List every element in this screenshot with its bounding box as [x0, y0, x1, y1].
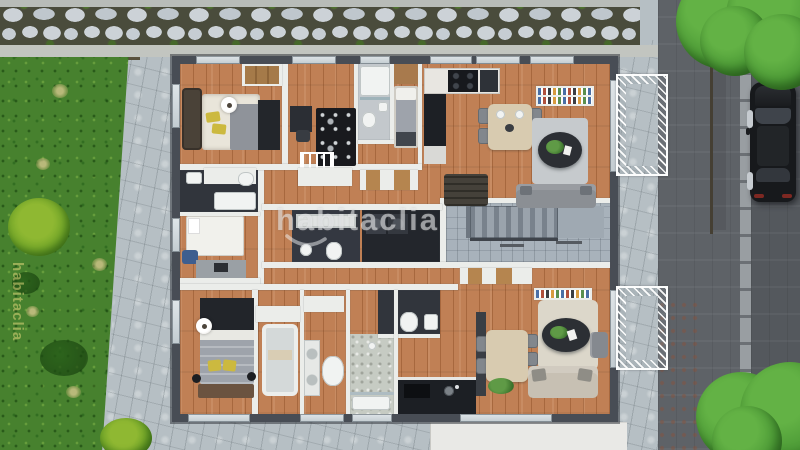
partition-wall [282, 64, 288, 168]
car-wheel [747, 172, 753, 190]
bed-blanket-dark [396, 132, 416, 146]
faucet [455, 385, 459, 389]
partition-wall [378, 334, 440, 338]
washer-column [304, 340, 320, 396]
desk-chair [296, 130, 310, 142]
yellow-pillow [222, 359, 236, 372]
stair-landing [558, 206, 604, 238]
balcony-floor [626, 296, 658, 360]
car-windshield [755, 108, 791, 124]
kitchen-sink-unit [480, 70, 498, 92]
car-roof [757, 126, 789, 166]
wall-shelf [500, 244, 524, 247]
armchair [590, 332, 608, 358]
lime-bush-small [100, 418, 152, 450]
toilet [238, 172, 254, 186]
window [300, 414, 344, 422]
dark-shrub [40, 340, 88, 376]
balcony-bottom [616, 286, 668, 370]
sofa-pillow [577, 368, 593, 382]
sink [186, 172, 202, 184]
bedroom-sofa [182, 88, 202, 150]
car-wheel [747, 110, 753, 128]
bathtub [214, 192, 256, 210]
window [360, 56, 390, 64]
staircase-railing [470, 238, 558, 241]
window [172, 300, 180, 344]
books-row [538, 88, 592, 95]
dry-grass-tuft [92, 258, 107, 271]
window [352, 414, 392, 422]
watermark-swoosh [284, 234, 328, 250]
dresser-wood [394, 64, 418, 84]
yellow-pillow [212, 123, 227, 134]
bed-pillow [188, 218, 200, 234]
vanity-wardrobe [304, 296, 344, 312]
partition-wall [180, 284, 458, 290]
dry-grass-tuft [36, 158, 50, 170]
bed-pillow [396, 88, 416, 100]
window [188, 414, 250, 422]
nightstand [192, 374, 201, 383]
partition-wall [418, 64, 422, 168]
window [172, 218, 180, 252]
plate [496, 110, 505, 119]
pendant-lamp [221, 97, 237, 113]
window [196, 56, 240, 64]
bed-duvet-gray [396, 100, 416, 132]
sink [378, 102, 388, 112]
vanity-sink [352, 396, 390, 410]
sofa-pillow [520, 186, 532, 195]
laptop [214, 263, 228, 272]
bathtub-vertical [262, 324, 298, 396]
window [430, 56, 472, 64]
sofa-pillow [531, 368, 547, 382]
toilet [326, 242, 342, 260]
living-media-wall [476, 312, 486, 396]
watermark-side-text: habitaclia [9, 262, 26, 341]
wardrobe-dark [258, 100, 280, 150]
staircase-steps [470, 206, 558, 238]
cooktop [448, 70, 478, 92]
centerpiece-bowl [505, 124, 514, 132]
kitchen-counter-edge [398, 377, 476, 380]
dry-grass-tuft [52, 84, 68, 98]
table-plant [550, 326, 568, 339]
partition-wall [262, 262, 610, 268]
books-row [538, 97, 592, 104]
lime-bush [8, 198, 70, 256]
closet-doors [245, 66, 279, 84]
car-taillight [754, 194, 764, 198]
watermark-text: habitaclia [276, 204, 439, 235]
car-taillight [782, 194, 792, 198]
nightstand [247, 372, 256, 381]
car-rear-glass [756, 168, 790, 182]
hall-wardrobe [298, 168, 352, 186]
wall-shelf [556, 241, 582, 244]
shower-glass [360, 97, 390, 100]
staircase-edge [466, 206, 470, 238]
car-mirror [746, 128, 750, 135]
partition-wall [346, 290, 350, 414]
window [476, 56, 520, 64]
lounge-chaise [444, 174, 488, 206]
toilet [400, 312, 418, 332]
shower-tray [360, 66, 390, 96]
yellow-pillow [207, 359, 221, 371]
parked-car [750, 82, 796, 202]
shower-head [368, 342, 376, 350]
fridge [424, 146, 446, 164]
bath-towel [268, 350, 292, 360]
bed-bench [198, 384, 254, 398]
sink [424, 314, 438, 330]
cooktop [404, 384, 430, 398]
hall-closet [460, 268, 532, 284]
balcony-floor [626, 84, 658, 166]
dining-table [486, 330, 528, 382]
window [530, 56, 574, 64]
shower-glass [350, 392, 394, 395]
balcony-top [616, 74, 668, 176]
sapling-shadow [713, 58, 726, 230]
lower-terrace [430, 422, 627, 450]
window [292, 56, 336, 64]
yellow-pillow [205, 111, 220, 123]
floorplan-3d-render: habitaclia habitaclia [0, 0, 800, 450]
kitchen-sink [444, 386, 454, 396]
table-plant [546, 140, 564, 154]
dry-grass-tuft [26, 306, 39, 317]
bed-blanket [230, 104, 260, 150]
window [172, 84, 180, 128]
window [460, 414, 552, 422]
books-row [536, 290, 590, 298]
dry-grass-tuft [66, 386, 81, 398]
floor-plant [488, 378, 514, 394]
hall-wardrobe [360, 170, 418, 190]
plate [515, 110, 524, 119]
toilet-large [322, 356, 344, 386]
desk [290, 106, 312, 132]
path-wall-top [0, 0, 640, 7]
partition-wall [358, 140, 394, 144]
pendant-lamp [196, 318, 212, 334]
bath-shelf [256, 306, 300, 322]
sofa-pillow [580, 186, 592, 195]
toilet [362, 112, 376, 128]
